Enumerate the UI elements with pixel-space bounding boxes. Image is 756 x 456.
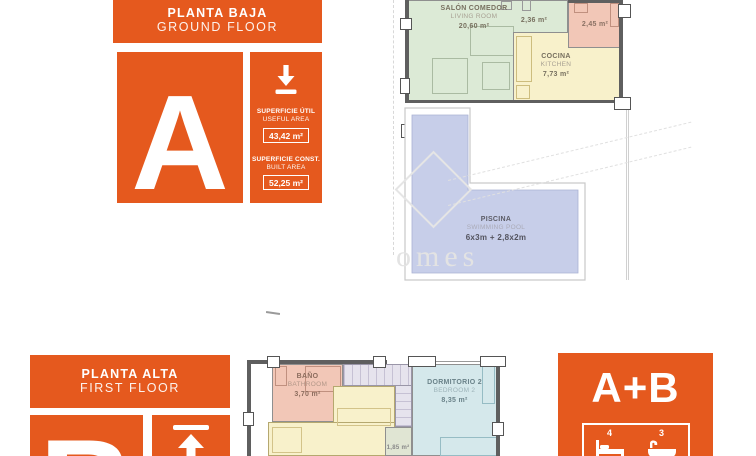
- wall-column: [492, 422, 504, 436]
- sofa-outline: [432, 58, 468, 94]
- unit-ab-summary: A+B 4 3: [558, 353, 713, 456]
- first-floor-title: PLANTA ALTA: [30, 367, 230, 381]
- bathrooms-count: 3: [659, 428, 664, 439]
- built-area-label-es: SUPERFICIE CONST.: [252, 155, 320, 164]
- upload-arrow-icon: [187, 447, 196, 456]
- stairs: [395, 385, 412, 427]
- pool-label: PISCINA SWIMMING POOL 6x3m + 2,8x2m: [446, 215, 546, 243]
- furniture-outline: [272, 427, 302, 453]
- built-area-label-en: BUILT AREA: [267, 164, 306, 172]
- useful-area-value: 43,42 m²: [263, 128, 309, 143]
- bathtub-icon: [647, 439, 677, 456]
- wall-thin: [436, 361, 480, 362]
- kitchen-label: COCINA KITCHEN 7,73 m²: [516, 52, 596, 79]
- fixture-outline: [522, 0, 531, 11]
- bed-icon: [595, 439, 625, 456]
- ground-floor-header: PLANTA BAJA GROUND FLOOR: [113, 0, 322, 43]
- watermark-text: omes: [396, 240, 479, 274]
- first-floor-header: PLANTA ALTA FIRST FLOOR: [30, 355, 230, 408]
- wall-column: [243, 412, 254, 426]
- boundary-dashed-line: [393, 0, 394, 255]
- upper-floor-arrow-block: [152, 415, 230, 456]
- wardrobe-outline: [337, 408, 391, 426]
- aseo-fixture-outline: [574, 3, 588, 13]
- window-box: [408, 356, 436, 367]
- useful-area-label-en: USEFUL AREA: [263, 116, 310, 124]
- wall-column: [400, 18, 412, 30]
- window-box: [480, 356, 506, 367]
- bedroom-2-label: DORMITORIO 2 BEDROOM 2 8,35 m²: [412, 378, 497, 405]
- wall: [405, 100, 515, 103]
- hall-area-label: 2,36 m²: [508, 16, 560, 25]
- dimension-tick: [266, 311, 280, 315]
- ground-floor-title: PLANTA BAJA: [113, 6, 322, 20]
- download-arrow-icon: [272, 64, 300, 96]
- wall: [247, 360, 251, 456]
- bathrooms-summary: 3: [647, 428, 677, 456]
- unit-b-badge: B: [30, 415, 143, 456]
- bed-outline: [440, 437, 497, 456]
- unit-ab-label: A+B: [591, 367, 679, 409]
- unit-a-badge: A: [117, 52, 243, 203]
- living-room-label: SALÓN COMEDOR LIVING ROOM 20,60 m²: [428, 4, 520, 31]
- useful-area-label-es: SUPERFICIE ÚTIL: [257, 107, 315, 116]
- first-floor-plan: BAÑO BATHROOM 3,70 m² 1,85 m² DORMITORIO…: [245, 350, 515, 456]
- upload-arrow-icon: [178, 434, 204, 448]
- wall: [496, 360, 500, 456]
- ground-floor-subtitle: GROUND FLOOR: [113, 20, 322, 34]
- bedrooms-count: 4: [607, 428, 612, 439]
- wall-column: [614, 97, 631, 110]
- wall-column: [373, 356, 386, 368]
- wall-column: [400, 78, 410, 94]
- bedrooms-summary: 4: [595, 428, 625, 456]
- built-area-value: 52,25 m²: [263, 175, 309, 190]
- coffee-table-outline: [482, 62, 510, 90]
- wall-column: [618, 4, 631, 18]
- wall: [568, 0, 622, 3]
- rooms-summary-box: 4 3: [582, 423, 690, 456]
- floorplan-page: PLANTA BAJA GROUND FLOOR A SUPERFICIE ÚT…: [0, 0, 756, 456]
- unit-a-letter: A: [117, 75, 243, 210]
- kitchen-appliance-outline: [516, 85, 530, 99]
- upload-arrow-icon: [173, 425, 209, 430]
- wall-column: [267, 356, 280, 368]
- ground-floor-area-panel: SUPERFICIE ÚTIL USEFUL AREA 43,42 m² SUP…: [250, 52, 322, 203]
- aseo-area-label: 2,45 m²: [568, 20, 622, 29]
- unit-b-letter: B: [30, 420, 143, 456]
- first-floor-subtitle: FIRST FLOOR: [30, 381, 230, 395]
- wall: [513, 100, 623, 103]
- ground-floor-plan: SALÓN COMEDOR LIVING ROOM 20,60 m² 2,36 …: [388, 0, 708, 300]
